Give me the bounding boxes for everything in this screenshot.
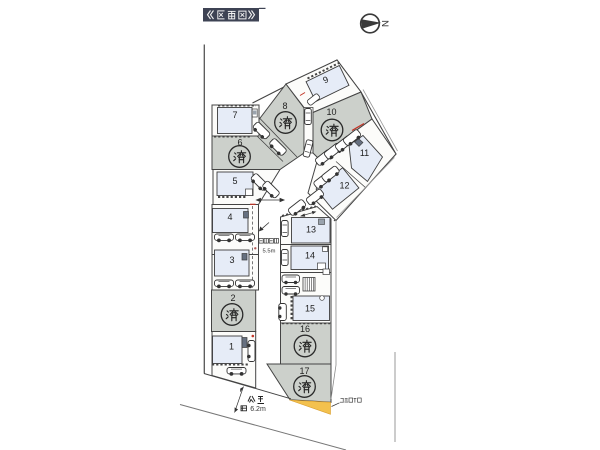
svg-text:13: 13	[306, 225, 316, 235]
svg-text:1: 1	[229, 342, 234, 352]
svg-text:2: 2	[230, 293, 235, 303]
svg-text:6.2m: 6.2m	[250, 406, 266, 413]
svg-text:8: 8	[282, 101, 287, 111]
svg-text:5: 5	[232, 176, 237, 186]
svg-text:16: 16	[300, 324, 310, 334]
svg-text:17: 17	[299, 366, 309, 376]
svg-text:12: 12	[339, 181, 349, 191]
svg-text:4: 4	[227, 212, 232, 222]
svg-text:7: 7	[232, 110, 237, 120]
svg-text:15: 15	[305, 304, 315, 314]
svg-text:14: 14	[305, 251, 315, 261]
svg-text:10: 10	[326, 107, 336, 117]
svg-text:5.5m: 5.5m	[263, 249, 276, 255]
svg-text:11: 11	[360, 148, 369, 158]
svg-text:3: 3	[229, 255, 234, 265]
svg-text:N: N	[379, 20, 390, 27]
